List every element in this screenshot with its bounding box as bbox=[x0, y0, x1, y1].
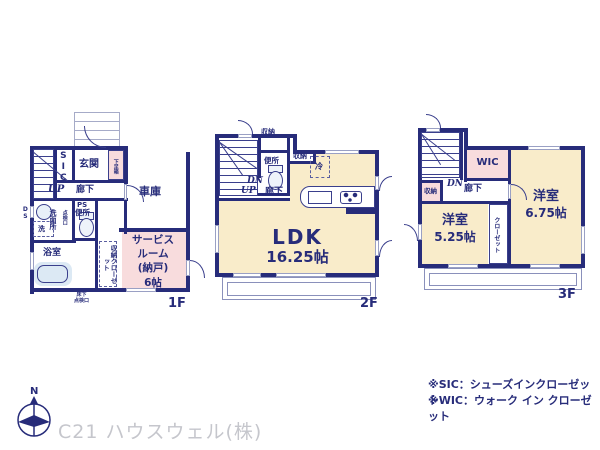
label-getabako: 下足箱 bbox=[112, 153, 118, 179]
window bbox=[325, 150, 359, 154]
room-label-yoshitsu-675: 洋室 bbox=[511, 190, 581, 205]
wall bbox=[219, 198, 290, 201]
room-label-closet: クローゼット bbox=[492, 208, 499, 262]
wall bbox=[258, 150, 290, 153]
room-label-rouka-3f: 廊下 bbox=[464, 184, 482, 194]
room-label-yoshitsu-525: 洋室 bbox=[422, 214, 488, 229]
room-door-arc bbox=[404, 224, 418, 241]
wall bbox=[95, 200, 98, 240]
wall bbox=[464, 178, 511, 181]
window bbox=[528, 146, 560, 150]
room-label-service-room: サービス ルーム (納戸) 6帖 bbox=[122, 233, 184, 290]
label-ds: DS bbox=[21, 204, 28, 222]
window bbox=[581, 226, 585, 254]
label-up: UP bbox=[48, 184, 64, 196]
wall bbox=[258, 138, 261, 178]
room-label-benjo-1f: 便所 bbox=[75, 209, 90, 218]
room-label-genkan: 玄関 bbox=[79, 159, 99, 171]
window bbox=[30, 252, 34, 270]
room-label-yoshitsu-675-size: 6.75帖 bbox=[511, 207, 581, 221]
kitchen-half-wall bbox=[346, 208, 375, 214]
wall bbox=[72, 148, 75, 182]
room-label-yokushitsu: 浴室 bbox=[43, 248, 61, 258]
balcony-inner-line bbox=[429, 273, 577, 286]
door-gap bbox=[426, 128, 440, 132]
floor-label-3f: 3F bbox=[558, 288, 576, 303]
room-label-yoshitsu-525-size: 5.25帖 bbox=[422, 231, 488, 245]
wall bbox=[460, 132, 463, 180]
label-shuno-top: 収納 bbox=[261, 128, 275, 136]
label-up: UP bbox=[241, 186, 256, 196]
room-label-rouka-2f: 廊下 bbox=[265, 187, 283, 197]
balcony-inner-line bbox=[227, 282, 371, 296]
wall bbox=[464, 146, 585, 150]
label-dn-3f: DN bbox=[447, 179, 463, 189]
label-washer: 洗 bbox=[38, 225, 45, 233]
room-label-sic: SIC bbox=[58, 151, 68, 181]
label-yukashita-tenken: 床下 点検口 bbox=[74, 292, 89, 304]
wall bbox=[30, 240, 76, 243]
compass: N bbox=[12, 390, 56, 444]
wall bbox=[124, 146, 128, 184]
note-wic: ※WIC：ウォーク イン クローゼット bbox=[428, 392, 600, 424]
wall bbox=[508, 146, 511, 184]
floor-label-1f: 1F bbox=[168, 297, 186, 312]
company-name: C21 ハウスウェル(株) bbox=[58, 417, 262, 444]
bathtub bbox=[37, 265, 68, 283]
window bbox=[30, 206, 34, 218]
wall bbox=[215, 134, 297, 138]
balcony-2f bbox=[222, 277, 376, 300]
window bbox=[215, 225, 219, 253]
stairs-door-arc bbox=[426, 114, 441, 128]
floor-label-2f: 2F bbox=[360, 297, 378, 312]
room-label-ldk-size: 16.25帖 bbox=[240, 249, 355, 266]
label-dn: DN bbox=[247, 176, 263, 186]
wall bbox=[287, 138, 290, 196]
toilet-bowl bbox=[79, 218, 94, 237]
floorplan-canvas: SIC 玄関 下足箱 UP 廊下 車庫 DS 洗面所 点検口 洗 PS 便所 浴… bbox=[0, 0, 600, 450]
room-label-benjo-2f: 便所 bbox=[264, 157, 279, 166]
room-label-shuno-closet: 収納クローゼット bbox=[98, 242, 116, 286]
door-gap bbox=[238, 134, 252, 138]
stove-burners-icon bbox=[340, 191, 362, 204]
service-door-arc bbox=[190, 260, 205, 278]
door-arc bbox=[379, 176, 392, 191]
wall bbox=[72, 200, 75, 240]
label-tenkenko: 点検口 bbox=[61, 206, 67, 228]
stairs-door-arc bbox=[238, 120, 253, 134]
label-shuno-right: 収納 bbox=[293, 152, 307, 160]
label-shuno-3f: 収納 bbox=[421, 188, 440, 195]
compass-icon bbox=[12, 390, 56, 444]
compass-north-label: N bbox=[30, 386, 38, 398]
kitchen-sink bbox=[308, 191, 332, 204]
wall bbox=[375, 150, 379, 277]
room-label-ldk: LDK bbox=[240, 226, 355, 249]
wall bbox=[119, 228, 190, 232]
label-fridge: 冷 bbox=[315, 162, 323, 171]
room-label-garage: 車庫 bbox=[139, 186, 161, 199]
room-label-rouka: 廊下 bbox=[76, 185, 94, 195]
door-arc bbox=[379, 240, 392, 257]
room-label-senmenjo: 洗面所 bbox=[49, 204, 57, 234]
room-label-wic: WIC bbox=[467, 157, 508, 169]
